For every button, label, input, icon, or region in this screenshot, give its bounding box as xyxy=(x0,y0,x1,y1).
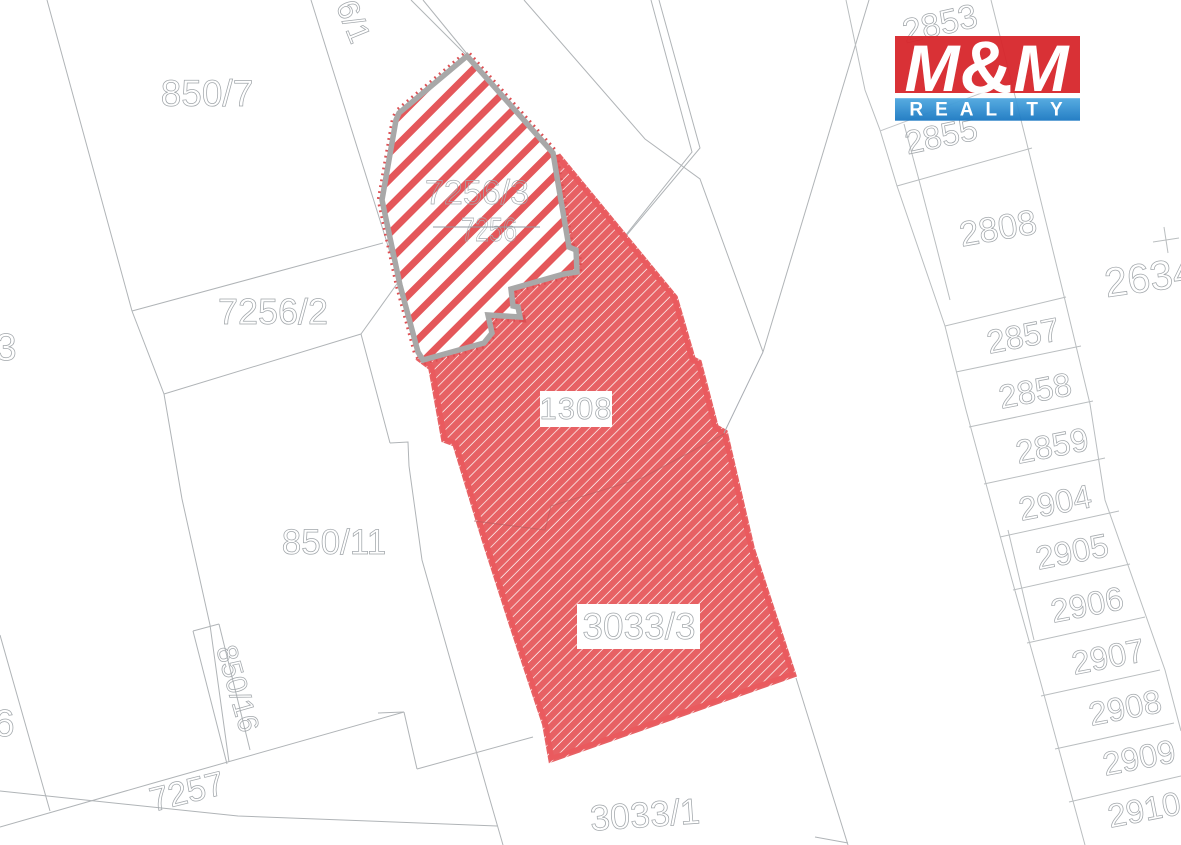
svg-text:850/11: 850/11 xyxy=(282,523,386,562)
svg-text:7256/3: 7256/3 xyxy=(425,174,529,212)
svg-text:3033/3: 3033/3 xyxy=(582,606,695,647)
svg-text:M: M xyxy=(1014,31,1071,105)
svg-text:&: & xyxy=(959,26,1012,109)
svg-text:6: 6 xyxy=(0,703,15,745)
svg-text:850/7: 850/7 xyxy=(161,73,254,114)
svg-text:3033/1: 3033/1 xyxy=(589,790,702,839)
svg-text:1308: 1308 xyxy=(540,391,613,426)
svg-text:7256: 7256 xyxy=(461,211,517,248)
svg-text:M: M xyxy=(905,31,962,105)
svg-text:7256/2: 7256/2 xyxy=(218,291,328,332)
svg-text:REALITY: REALITY xyxy=(909,100,1074,121)
svg-text:3: 3 xyxy=(0,327,17,369)
